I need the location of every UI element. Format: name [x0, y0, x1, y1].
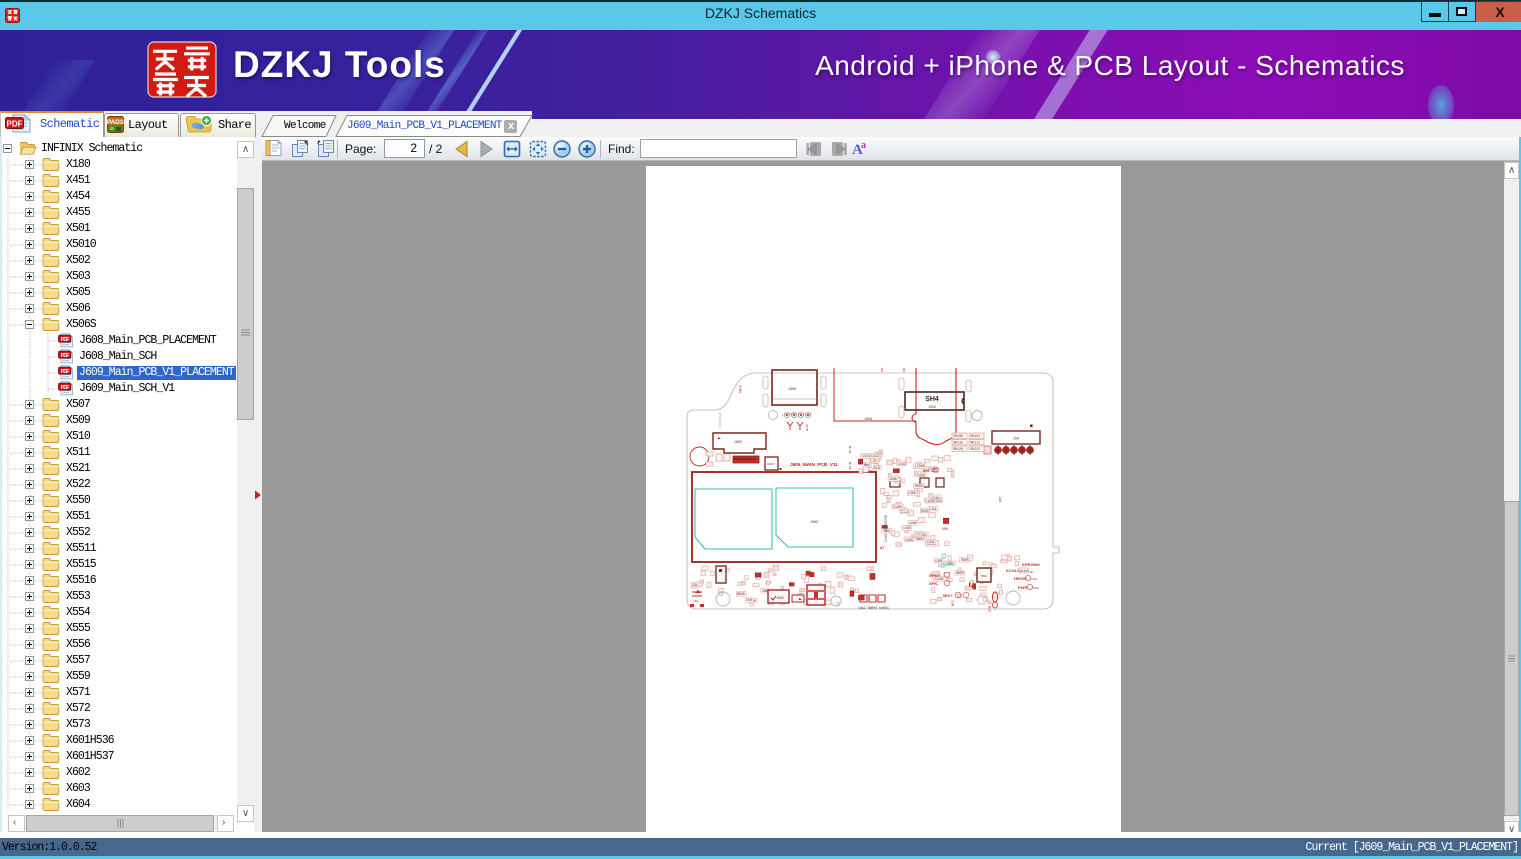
svg-text:C465: C465 [935, 560, 943, 564]
svg-text:C413: C413 [871, 455, 879, 459]
svg-text:HBM: HBM [942, 527, 948, 531]
svg-text:R605: R605 [961, 559, 969, 563]
svg-text:RK110: RK110 [954, 441, 964, 445]
svg-text:C17: C17 [900, 509, 906, 513]
svg-text:PDF: PDF [61, 353, 69, 359]
svg-text:C432: C432 [917, 474, 925, 478]
svg-text:R403: R403 [921, 510, 929, 514]
svg-text:J605: J605 [734, 441, 743, 445]
svg-text:RK101: RK101 [971, 434, 981, 438]
svg-text:C989: C989 [917, 465, 925, 469]
svg-text:BC456: BC456 [1020, 570, 1029, 573]
svg-text:CWA2 DW800 bw004: CWA2 DW800 bw004 [858, 606, 889, 610]
svg-text:MIC: MIC [952, 600, 956, 606]
svg-text:KCOLD: KCOLD [1006, 568, 1020, 573]
svg-text:C431: C431 [927, 541, 935, 545]
svg-text:J606: J606 [776, 596, 784, 600]
svg-text:J40: J40 [997, 496, 1001, 502]
svg-text:1286: 1286 [889, 478, 897, 482]
svg-text:HROW: HROW [1014, 576, 1027, 581]
svg-text:C50: C50 [746, 599, 752, 603]
svg-text:PDF: PDF [7, 119, 23, 128]
svg-text:PDF: PDF [61, 369, 69, 375]
svg-text:T: T [782, 415, 784, 418]
svg-text:CWM: CWM [762, 590, 768, 594]
svg-text:17W: 17W [1031, 578, 1037, 581]
svg-text:J60A: J60A [788, 388, 797, 392]
svg-text:PDF: PDF [61, 385, 69, 391]
svg-text:C61: C61 [692, 584, 698, 588]
svg-text:SPK-: SPK- [929, 581, 939, 586]
svg-text:M60 1: M60 1 [923, 470, 933, 474]
svg-text:C343: C343 [898, 463, 906, 467]
svg-text:R605: R605 [915, 485, 923, 489]
svg-text:J608: J608 [810, 521, 819, 525]
svg-text:W607: W607 [917, 538, 925, 542]
svg-text:J609_MAIN_PCB_V11: J609_MAIN_PCB_V11 [790, 462, 838, 468]
svg-text:R608: R608 [737, 593, 745, 597]
svg-text:SIM: SIM [989, 606, 993, 612]
svg-text:RK120: RK120 [954, 447, 964, 451]
svg-text:C184: C184 [932, 497, 940, 501]
svg-text:MIC+: MIC+ [943, 593, 953, 598]
svg-text:J60: J60 [1013, 438, 1019, 442]
svg-text:PWR: PWR [1018, 585, 1027, 590]
svg-text:U607: U607 [767, 463, 774, 466]
svg-text:SH4: SH4 [925, 396, 939, 403]
svg-text:B+: B+ [1030, 571, 1034, 574]
svg-text:A7: A7 [880, 547, 884, 551]
svg-text:C469: C469 [908, 492, 916, 496]
svg-text:RK111: RK111 [971, 441, 981, 445]
svg-text:SIMA: SIMA [737, 385, 741, 394]
svg-text:17W: 17W [1033, 587, 1039, 590]
svg-text:MW4: MW4 [864, 464, 870, 468]
svg-text:M605: M605 [956, 572, 964, 576]
svg-text:PADS: PADS [107, 119, 124, 126]
svg-text:KPROMO: KPROMO [1022, 562, 1040, 567]
svg-text:SPK+: SPK+ [929, 573, 940, 578]
svg-text:a: a [861, 140, 866, 151]
svg-text:CJ51: CJ51 [929, 508, 937, 512]
svg-text:C455: C455 [946, 563, 954, 567]
svg-text:SIM6: SIM6 [805, 424, 808, 431]
svg-text:C343 CONNECTOR: C343 CONNECTOR [884, 515, 888, 542]
svg-text:C414: C414 [862, 455, 870, 459]
svg-text:RK121: RK121 [971, 447, 981, 451]
svg-text:RK100: RK100 [954, 434, 964, 438]
svg-text:J608: J608 [864, 418, 872, 422]
svg-text:M60: M60 [981, 575, 987, 578]
svg-text:J60: J60 [693, 600, 699, 603]
svg-text:DLB: DLB [874, 467, 880, 471]
svg-text:PDF: PDF [61, 337, 69, 343]
svg-text:J609: J609 [928, 405, 936, 409]
svg-text:C450: C450 [903, 527, 911, 531]
